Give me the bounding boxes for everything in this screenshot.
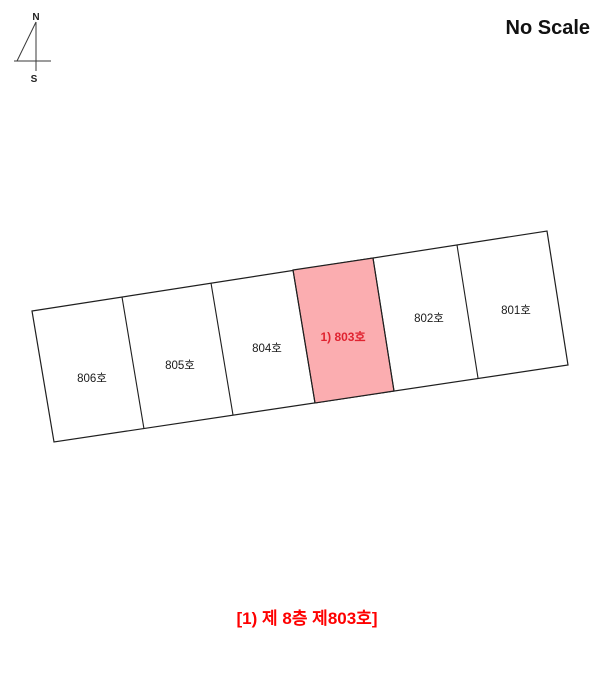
unit-label-804: 804호 — [252, 342, 282, 355]
scale-note: No Scale — [506, 17, 590, 39]
unit-label-803-highlighted: 1) 803호 — [320, 330, 365, 344]
unit-label-801: 801호 — [501, 304, 531, 317]
site-plan-canvas: N S No Scale 806호 805호 804호 1) 803호 802호… — [0, 0, 604, 700]
unit-label-805: 805호 — [165, 359, 195, 372]
unit-label-806: 806호 — [77, 372, 107, 385]
compass-south-label: S — [31, 74, 38, 85]
compass-north-label: N — [32, 12, 39, 23]
compass-diagonal-line — [17, 22, 36, 61]
floor-plan: 806호 805호 804호 1) 803호 802호 801호 — [32, 231, 568, 442]
compass: N S — [14, 12, 51, 85]
caption: [1) 제 8층 제803호] — [237, 609, 378, 628]
building-outline — [32, 231, 568, 442]
unit-label-802: 802호 — [414, 312, 444, 325]
